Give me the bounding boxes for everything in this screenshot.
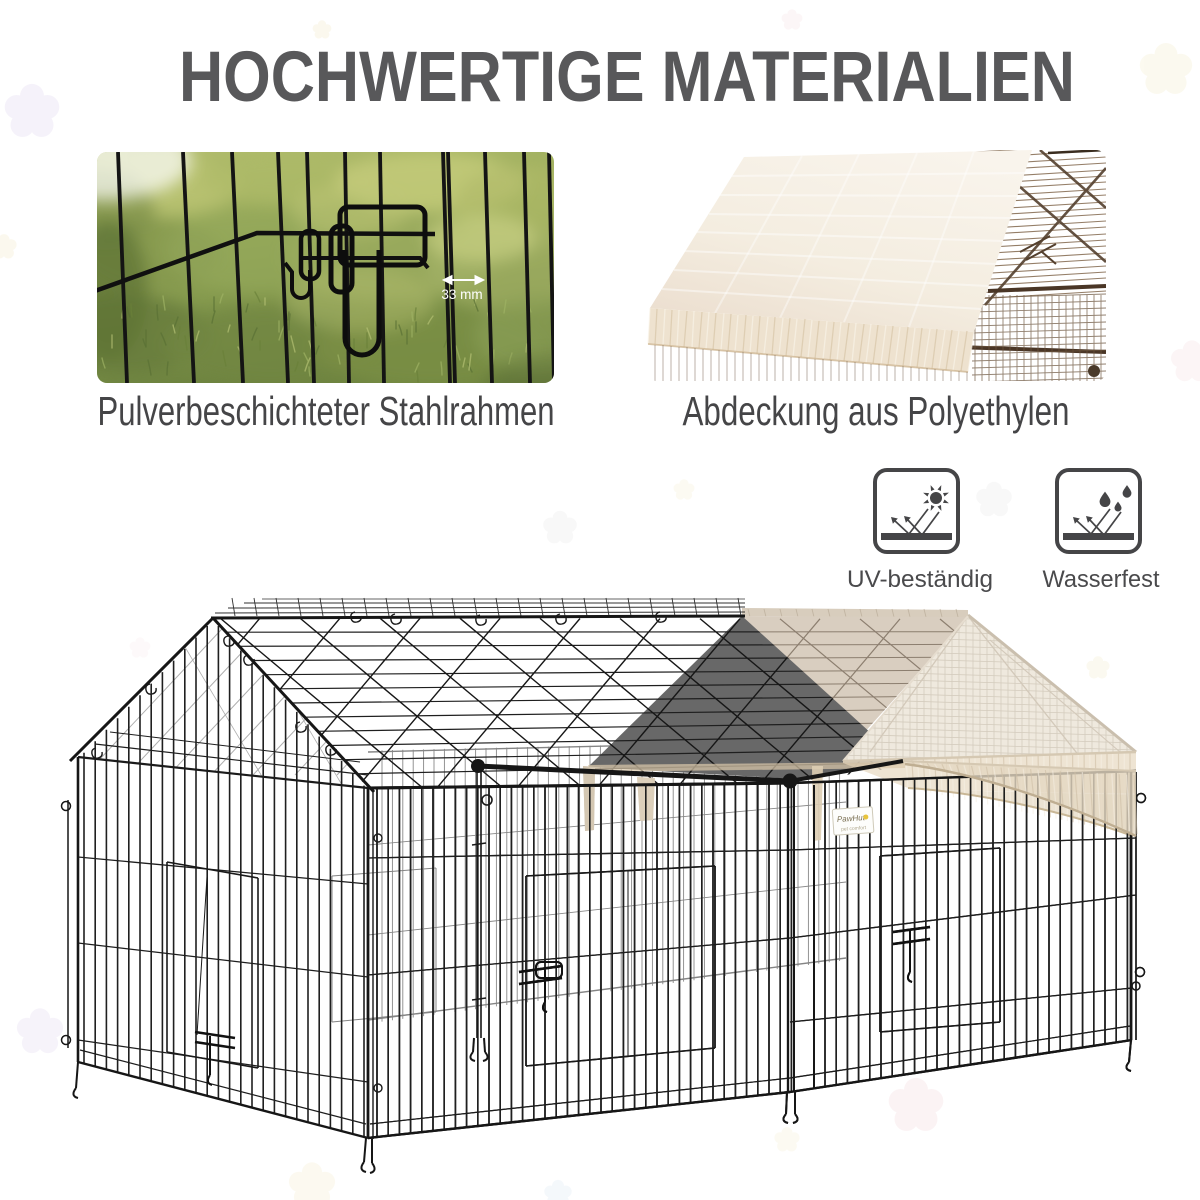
svg-text:Abdeckung aus Polyethylen: Abdeckung aus Polyethylen (683, 388, 1070, 434)
svg-text:Pulverbeschichteter Stahlrahme: Pulverbeschichteter Stahlrahmen (98, 388, 555, 434)
svg-text:UV-beständig: UV-beständig (847, 566, 993, 593)
svg-text:33 mm: 33 mm (441, 287, 482, 302)
svg-text:Wasserfest: Wasserfest (1043, 566, 1160, 593)
svg-text:HOCHWERTIGE MATERIALIEN: HOCHWERTIGE MATERIALIEN (179, 38, 1075, 117)
